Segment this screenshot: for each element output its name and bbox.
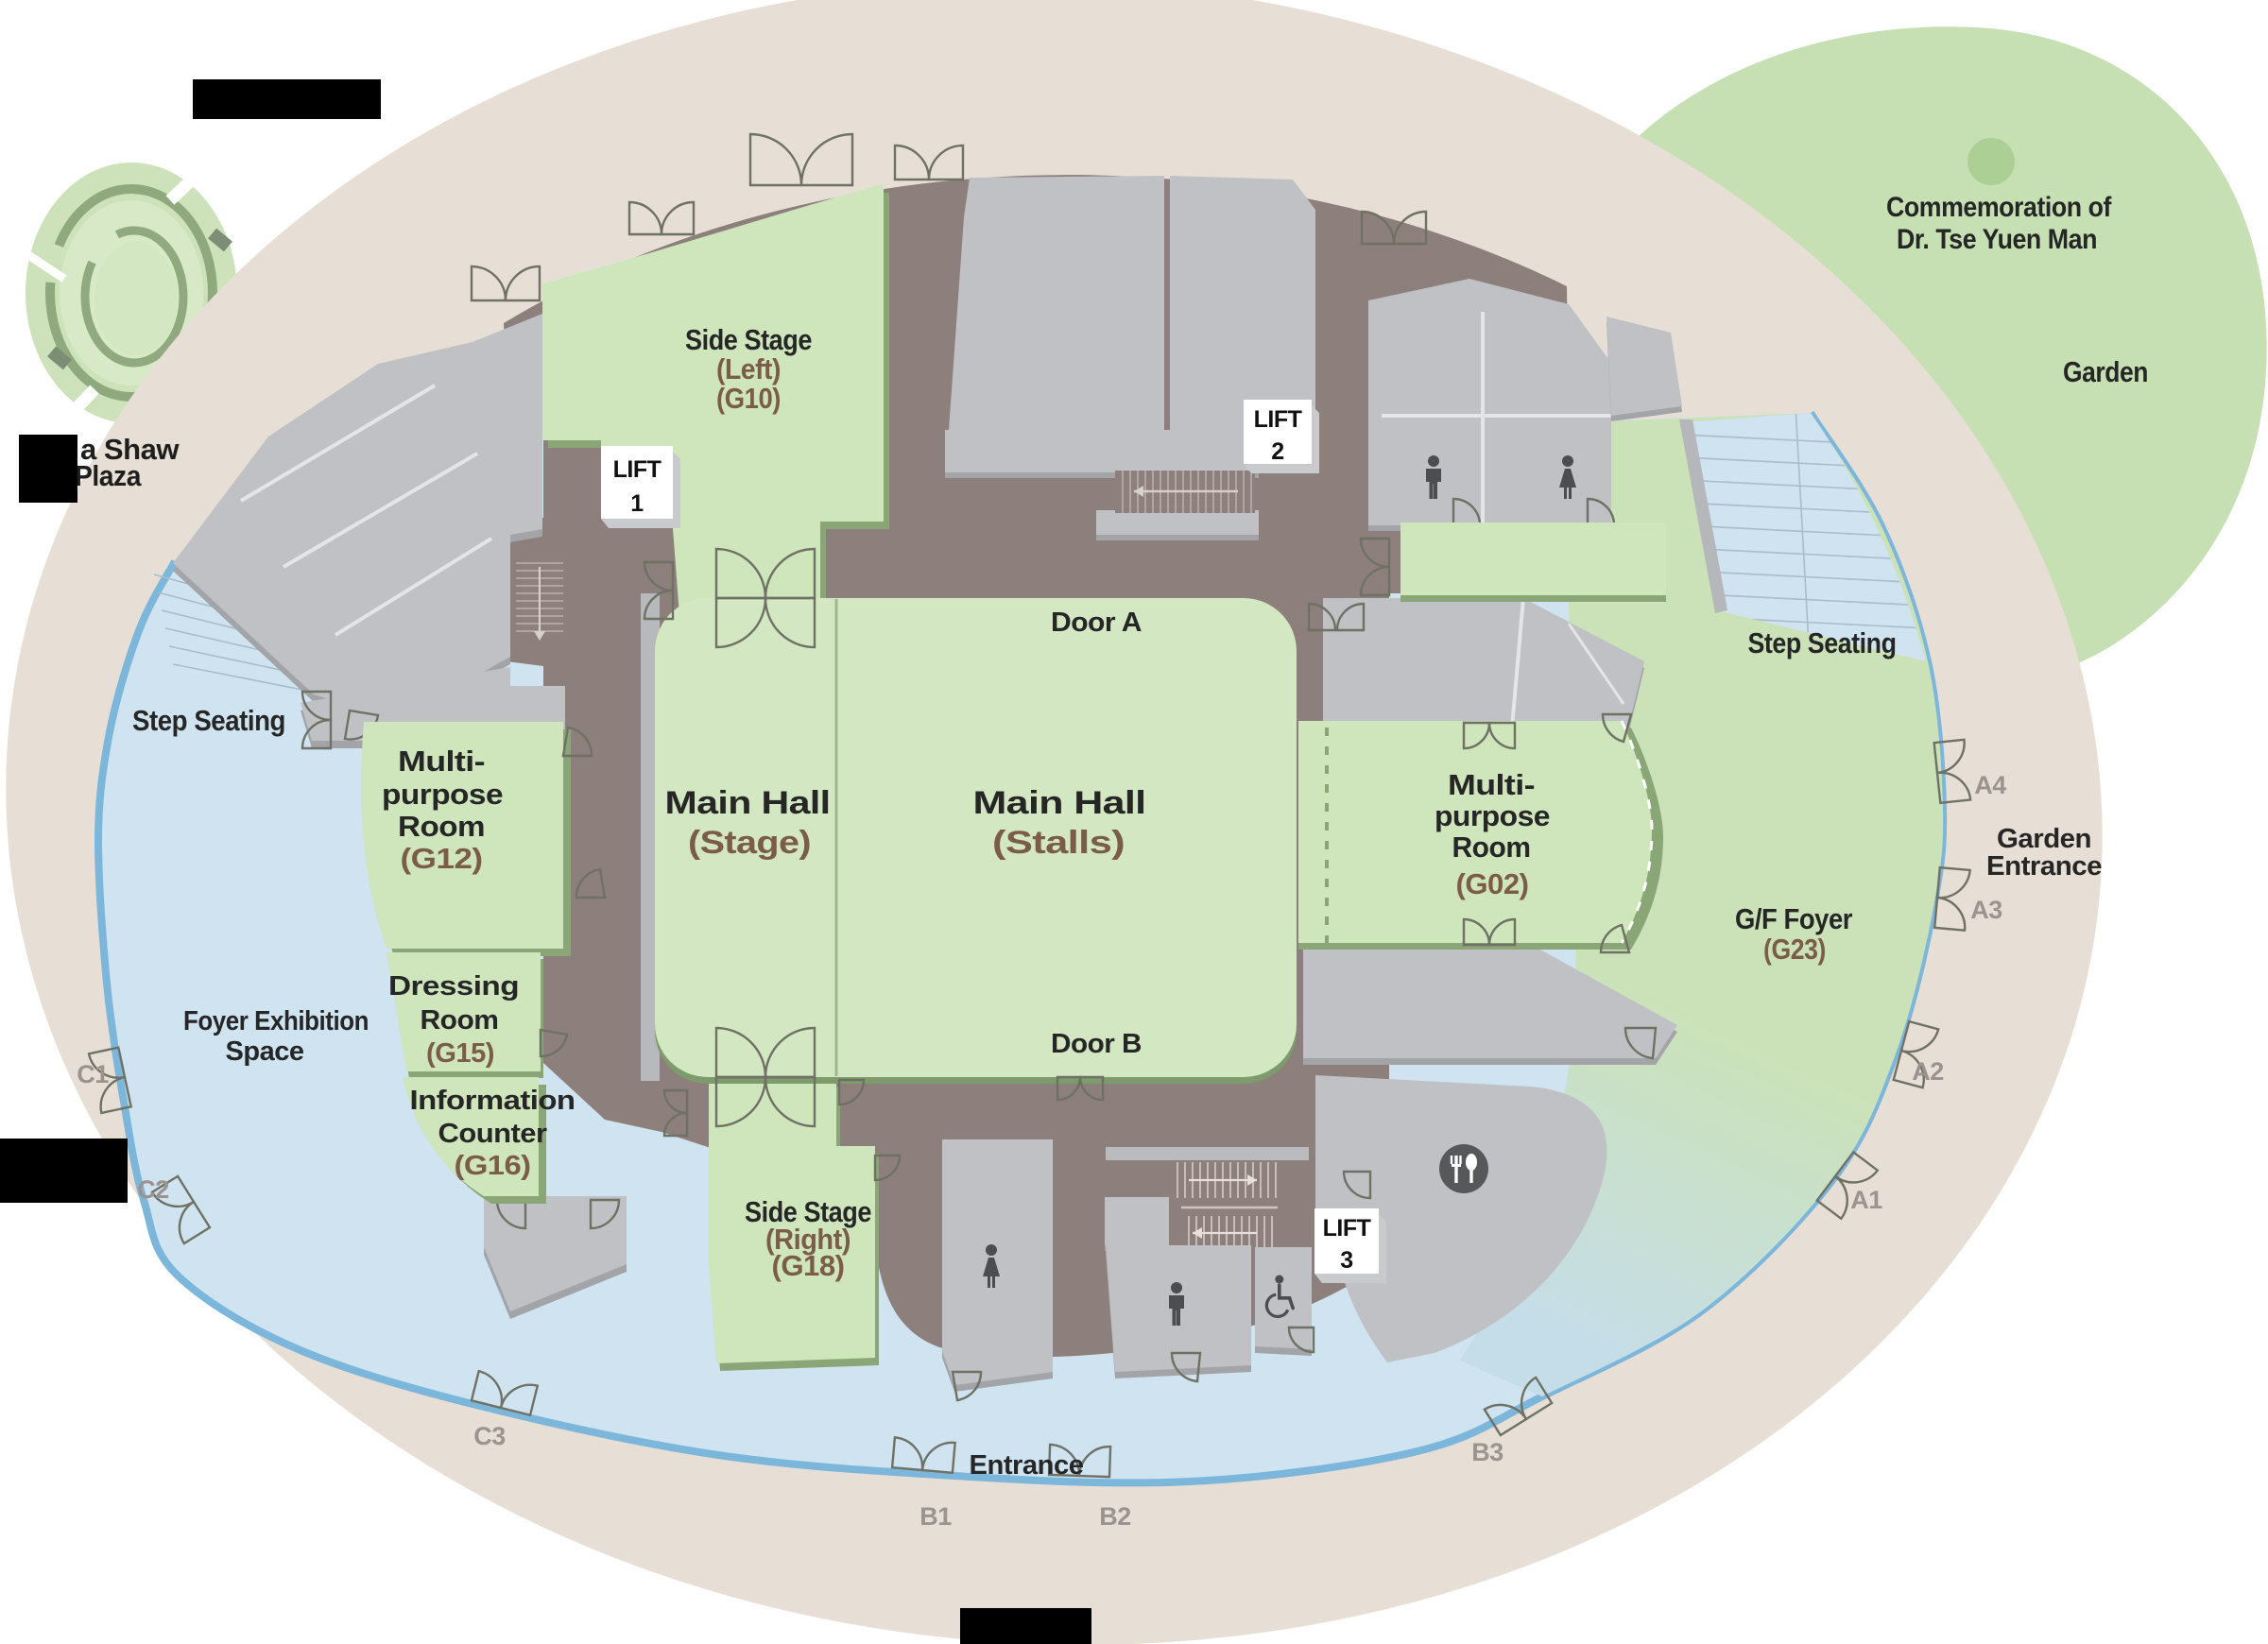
svg-text:(Left): (Left) xyxy=(716,352,781,385)
svg-text:LIFT: LIFT xyxy=(1254,406,1302,433)
svg-text:3: 3 xyxy=(1340,1247,1352,1274)
svg-text:Commemoration of: Commemoration of xyxy=(1886,192,2112,223)
svg-text:G/F Foyer: G/F Foyer xyxy=(1735,902,1852,935)
svg-text:Multi-: Multi- xyxy=(1448,768,1535,801)
svg-text:Foyer Exhibition: Foyer Exhibition xyxy=(183,1006,369,1036)
svg-text:C1: C1 xyxy=(77,1060,109,1088)
svg-text:purpose: purpose xyxy=(1435,799,1550,832)
svg-text:(G12): (G12) xyxy=(401,842,483,875)
svg-text:A4: A4 xyxy=(1974,771,2006,799)
svg-text:(G18): (G18) xyxy=(772,1249,845,1282)
svg-text:B3: B3 xyxy=(1471,1438,1503,1466)
svg-text:(G23): (G23) xyxy=(1763,933,1826,966)
svg-text:Dressing: Dressing xyxy=(388,971,519,1002)
svg-text:2: 2 xyxy=(1271,438,1283,465)
svg-text:B1: B1 xyxy=(919,1502,952,1531)
svg-text:Dr. Tse Yuen Man: Dr. Tse Yuen Man xyxy=(1897,224,2097,255)
svg-text:Plaza: Plaza xyxy=(75,459,142,492)
svg-text:Room: Room xyxy=(398,810,485,843)
svg-text:Entrance: Entrance xyxy=(970,1450,1084,1481)
svg-text:Main Hall: Main Hall xyxy=(973,785,1146,821)
svg-text:Information: Information xyxy=(410,1086,576,1116)
svg-text:Space: Space xyxy=(226,1036,304,1067)
svg-text:Main Hall: Main Hall xyxy=(665,785,831,821)
svg-text:purpose: purpose xyxy=(382,778,503,811)
svg-text:LIFT: LIFT xyxy=(1323,1215,1371,1242)
svg-text:Room: Room xyxy=(421,1005,499,1036)
svg-text:Entrance: Entrance xyxy=(1986,851,2102,882)
svg-text:Step Seating: Step Seating xyxy=(132,704,285,737)
svg-text:Garden: Garden xyxy=(1997,824,2091,854)
svg-text:LIFT: LIFT xyxy=(613,456,661,483)
svg-text:C2: C2 xyxy=(137,1175,169,1204)
svg-text:(Stalls): (Stalls) xyxy=(992,825,1125,861)
svg-text:(G16): (G16) xyxy=(455,1151,531,1181)
svg-text:Garden: Garden xyxy=(2063,355,2148,388)
svg-text:Door B: Door B xyxy=(1051,1029,1142,1059)
svg-text:(G10): (G10) xyxy=(716,382,781,415)
svg-text:Multi-: Multi- xyxy=(398,745,485,778)
svg-text:Room: Room xyxy=(1452,831,1531,864)
svg-text:A2: A2 xyxy=(1912,1057,1944,1086)
svg-text:Door A: Door A xyxy=(1051,608,1143,638)
svg-text:A1: A1 xyxy=(1850,1186,1882,1214)
svg-text:B2: B2 xyxy=(1099,1502,1131,1531)
svg-text:(Stage): (Stage) xyxy=(688,825,811,861)
svg-text:C3: C3 xyxy=(473,1422,506,1450)
svg-text:Step Seating: Step Seating xyxy=(1748,626,1897,659)
svg-text:(G15): (G15) xyxy=(426,1038,494,1069)
svg-text:Side Stage: Side Stage xyxy=(685,323,812,356)
svg-text:Counter: Counter xyxy=(438,1119,547,1149)
svg-text:(G02): (G02) xyxy=(1456,867,1529,900)
svg-text:1: 1 xyxy=(630,490,644,517)
svg-text:A3: A3 xyxy=(1970,896,2002,924)
